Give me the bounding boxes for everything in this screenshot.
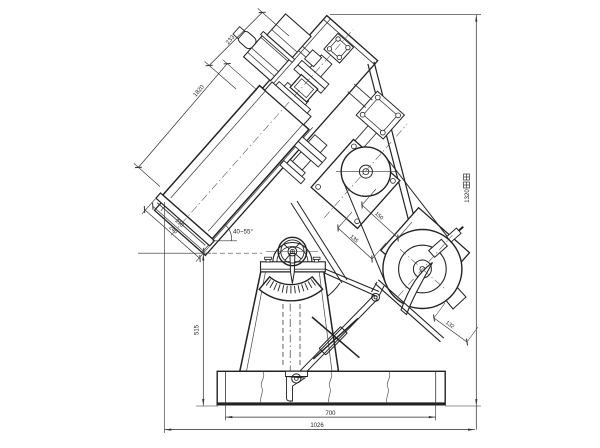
svg-text:515: 515 <box>195 324 201 335</box>
svg-text:1320: 1320 <box>465 189 471 203</box>
svg-text:1026: 1026 <box>310 423 324 429</box>
svg-text:700: 700 <box>325 411 336 417</box>
svg-text:40~55°: 40~55° <box>233 229 253 236</box>
